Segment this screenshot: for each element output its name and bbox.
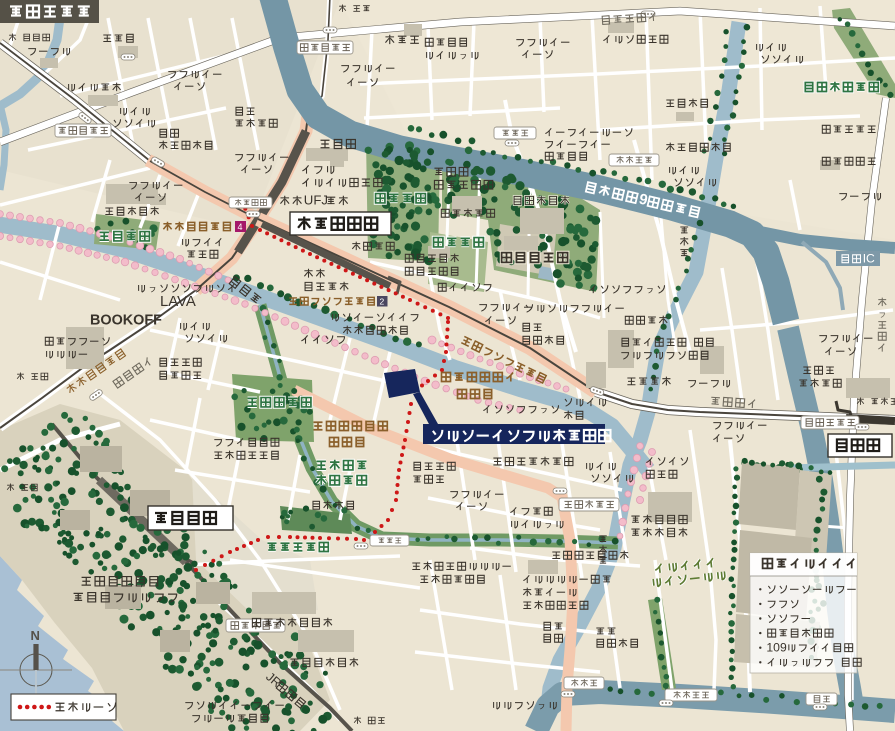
svg-text:UFJ: UFJ — [304, 193, 328, 208]
svg-text:N: N — [31, 628, 40, 643]
svg-text:2: 2 — [380, 297, 385, 307]
svg-text:4: 4 — [238, 222, 243, 232]
svg-text:BOOKOFF: BOOKOFF — [90, 313, 162, 329]
svg-text:LAVA: LAVA — [160, 294, 196, 310]
svg-text:IC: IC — [863, 251, 875, 265]
svg-text:109: 109 — [766, 640, 787, 654]
